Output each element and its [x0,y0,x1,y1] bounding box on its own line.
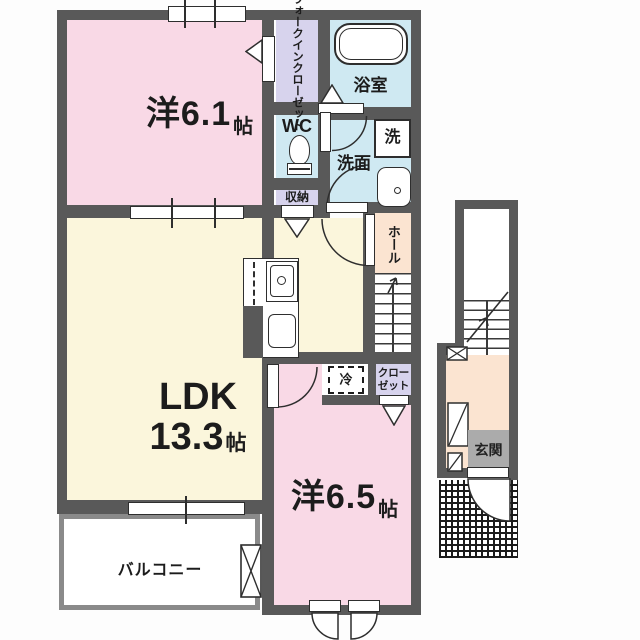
kitchen-stove-icon [268,314,296,348]
storage-door-triangle-icon [284,218,310,238]
wc-door [320,112,331,152]
ldk-unit-text: 帖 [225,433,246,458]
balcony-label-text: バルコニー [118,563,203,580]
sliding-door-bedroom1-ldk [130,206,244,219]
window-top-tick [214,0,216,28]
hall-label-text: ホール [386,225,400,264]
shoe-cabinet-icon [447,402,469,447]
bedroom1-name: 洋6.1 [146,97,231,133]
wc-label: WC [276,115,318,137]
closet-door [379,395,409,405]
sink-drain-icon [394,187,401,194]
ldk-label: LDK 13.3帖 [108,372,288,464]
wall-left [57,10,67,514]
toilet-icon [289,135,310,165]
walkin-closet-door-triangle-icon [245,38,263,65]
closet-label-line1: クロー [378,367,410,380]
annex-wall-left-upper [455,209,464,352]
bathtub-inner-icon [339,28,403,60]
window-top-tick [184,0,186,28]
wall-right [411,10,421,615]
annex-stairwell [464,209,509,288]
hall-ldk-door [365,214,375,266]
bathroom-label: 浴室 [330,74,411,98]
ldk-name: LDK [159,378,237,418]
hall-label: ホール [381,216,405,272]
kitchen-counter-dash [253,262,255,305]
bedroom1-unit: 帖 [233,117,254,138]
closet-label-line2: ゼット [378,380,410,393]
closet-label: クロー ゼット [376,366,411,394]
sliding-door-tick [214,198,216,228]
sliding-door-tick [171,198,173,228]
washroom-door [326,202,368,213]
wall-bottom [262,605,421,615]
wc-door-arc-icon [331,115,368,152]
french-window-right-leaf [348,600,380,612]
entrance-label-text: 玄関 [475,443,503,458]
closet-door-triangle-icon [382,405,406,426]
kitchen-faucet-icon [277,276,286,285]
balcony-x-box-icon [240,544,262,598]
storage-label-text: 収納 [285,191,309,204]
refrigerator-label-text: 冷 [339,373,352,387]
toilet-tank-line [289,168,310,170]
front-door-arc-icon [467,478,511,522]
shoe-cabinet-small-icon [447,452,463,472]
bedroom1-label: 洋6.1帖 [110,92,290,138]
storage-door [281,205,314,218]
annex-wall-left-lower [437,355,446,468]
hall-ldk-door-arc-icon [321,218,370,267]
wc-label-text: WC [282,117,312,136]
french-window-right-arc-icon [350,612,378,640]
floor-plan: 洋6.1帖 ウォークインクローゼット 浴室 WC 洗 洗面 収納 ホール LDK… [0,0,640,640]
bathroom-label-text: 浴室 [354,77,388,95]
refrigerator-label: 冷 [328,366,364,394]
entrance-label: 玄関 [468,430,509,470]
annex-x-box-icon [446,346,468,361]
storage-label: 収納 [276,189,318,206]
annex-wall-right [509,200,518,480]
kitchen-wall-stub [243,306,263,358]
walkin-closet-label-line1: ウォークイン [291,0,303,62]
washer-label-text: 洗 [384,130,400,147]
french-window-left-arc-icon [311,612,339,640]
washroom-label-text: 洗面 [337,155,371,173]
stairs-1f-up-arrow-icon [464,288,509,350]
window-top [168,6,246,22]
wall-fridge-closet [368,364,376,397]
washroom-label: 洗面 [324,152,384,176]
french-window-left-leaf [309,600,341,612]
ldk-size: 13.3帖 [150,418,247,458]
walkin-closet-door [262,36,275,82]
ldk-size-text: 13.3 [150,418,224,458]
walkin-closet-label: ウォークインクローゼット [277,24,317,100]
balcony-label: バルコニー [90,558,230,584]
balcony-window-tick [185,496,187,524]
stairs-2f-up-arrow-icon [383,274,401,296]
ldk-name-text: LDK [159,376,237,418]
bedroom2-label: 洋6.5帖 [265,475,425,521]
bedroom2-unit: 帖 [378,500,399,521]
bedroom2-name: 洋6.5 [291,480,376,516]
